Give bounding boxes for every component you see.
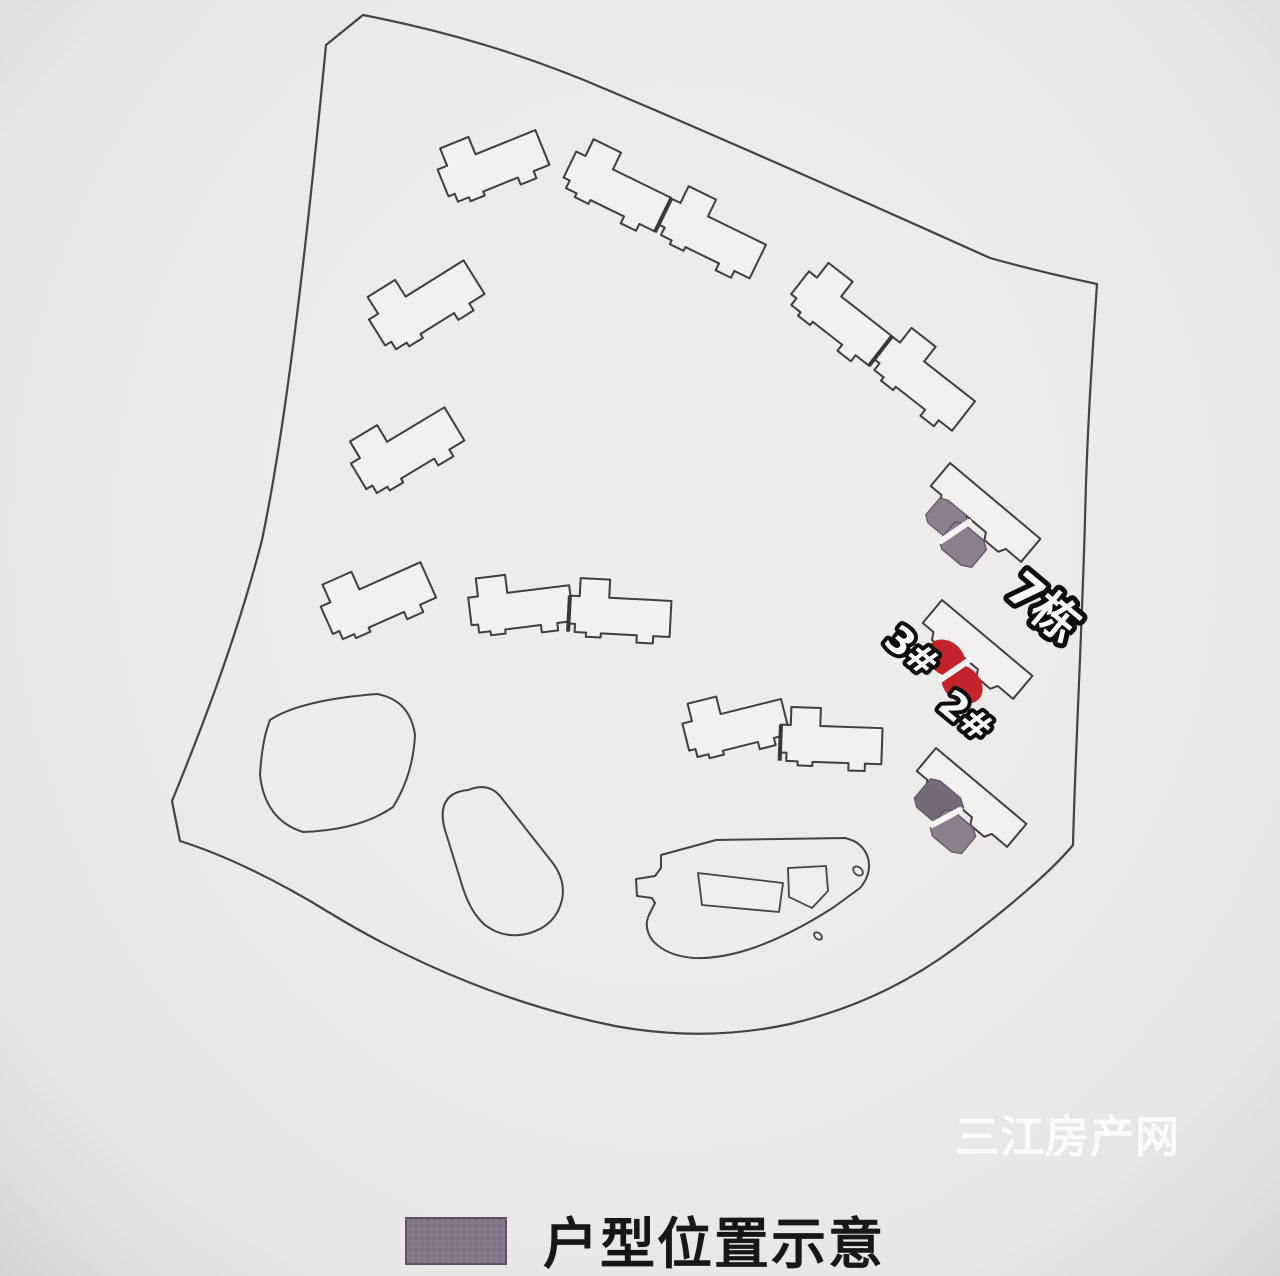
building-footprint [568,578,673,645]
watermark: 三江房产网 [955,1112,1180,1163]
site-plan-svg: 3# 2# 7栋 三江房产网 户型位置示意 [0,0,1280,1276]
building-footprint [466,567,574,640]
building-footprint [779,707,883,772]
building-footprint [431,113,553,212]
amenity-building [636,838,869,958]
building-footprint [341,391,469,504]
legend-swatch-texture [406,1218,506,1264]
legend: 户型位置示意 [406,1212,885,1276]
pond [443,787,563,935]
pond [260,694,415,832]
site-plan-image: 3# 2# 7栋 三江房产网 户型位置示意 [0,0,1280,1276]
building-seam [780,725,781,761]
building-seam [568,596,570,632]
building-footprint [358,244,488,360]
building-footprint [678,681,792,765]
legend-label: 户型位置示意 [543,1212,885,1276]
building-footprint [313,545,440,650]
building-7-label: 7栋 [996,561,1090,653]
unit-label-2: 2# [930,682,1001,751]
